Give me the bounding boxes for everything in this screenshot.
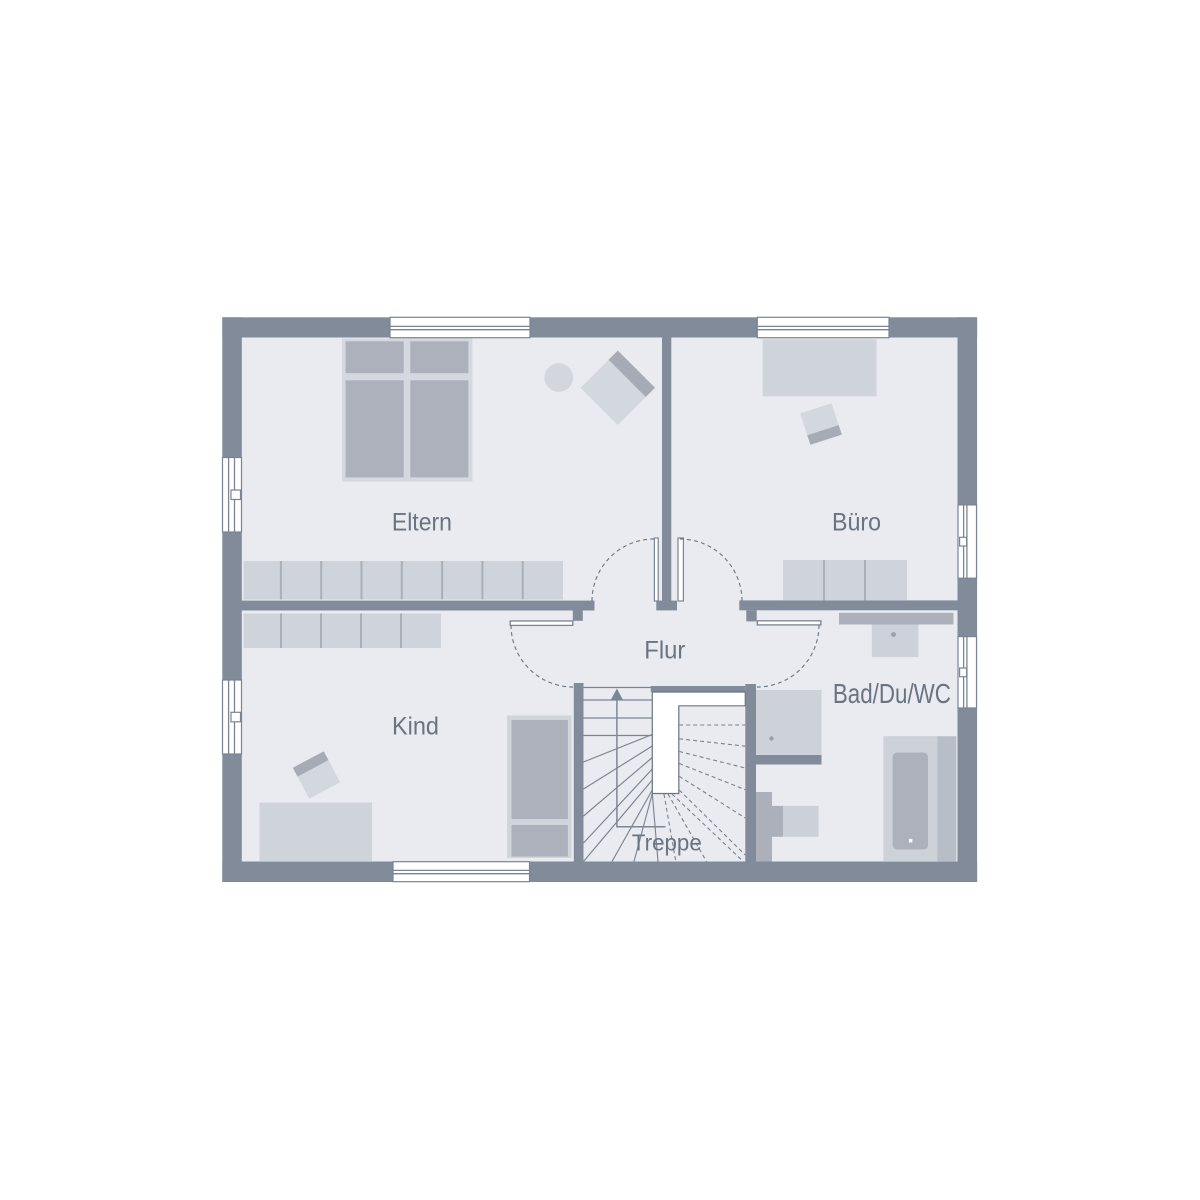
svg-text:Treppe: Treppe	[632, 830, 702, 856]
svg-text:Büro: Büro	[832, 509, 881, 537]
svg-text:Kind: Kind	[392, 712, 439, 740]
svg-text:Flur: Flur	[644, 637, 685, 665]
svg-text:Bad/Du/WC: Bad/Du/WC	[833, 678, 951, 709]
svg-text:Eltern: Eltern	[392, 509, 452, 537]
